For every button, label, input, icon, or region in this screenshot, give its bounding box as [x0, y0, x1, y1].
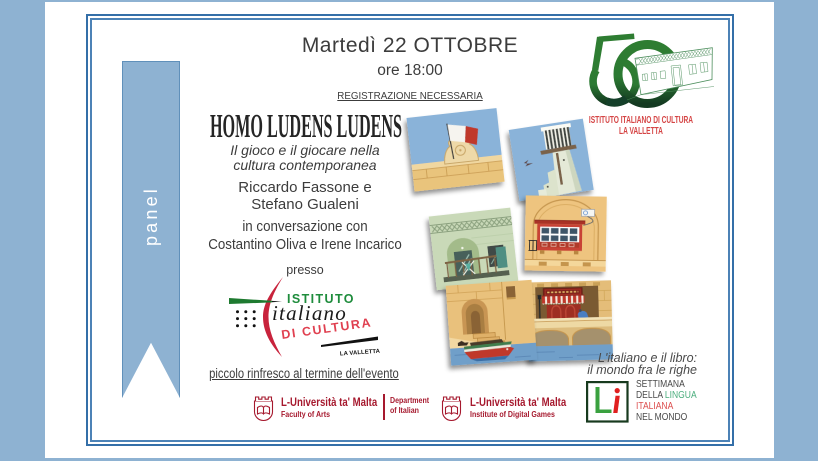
svg-text:LA VALLETTA: LA VALLETTA — [340, 349, 381, 358]
